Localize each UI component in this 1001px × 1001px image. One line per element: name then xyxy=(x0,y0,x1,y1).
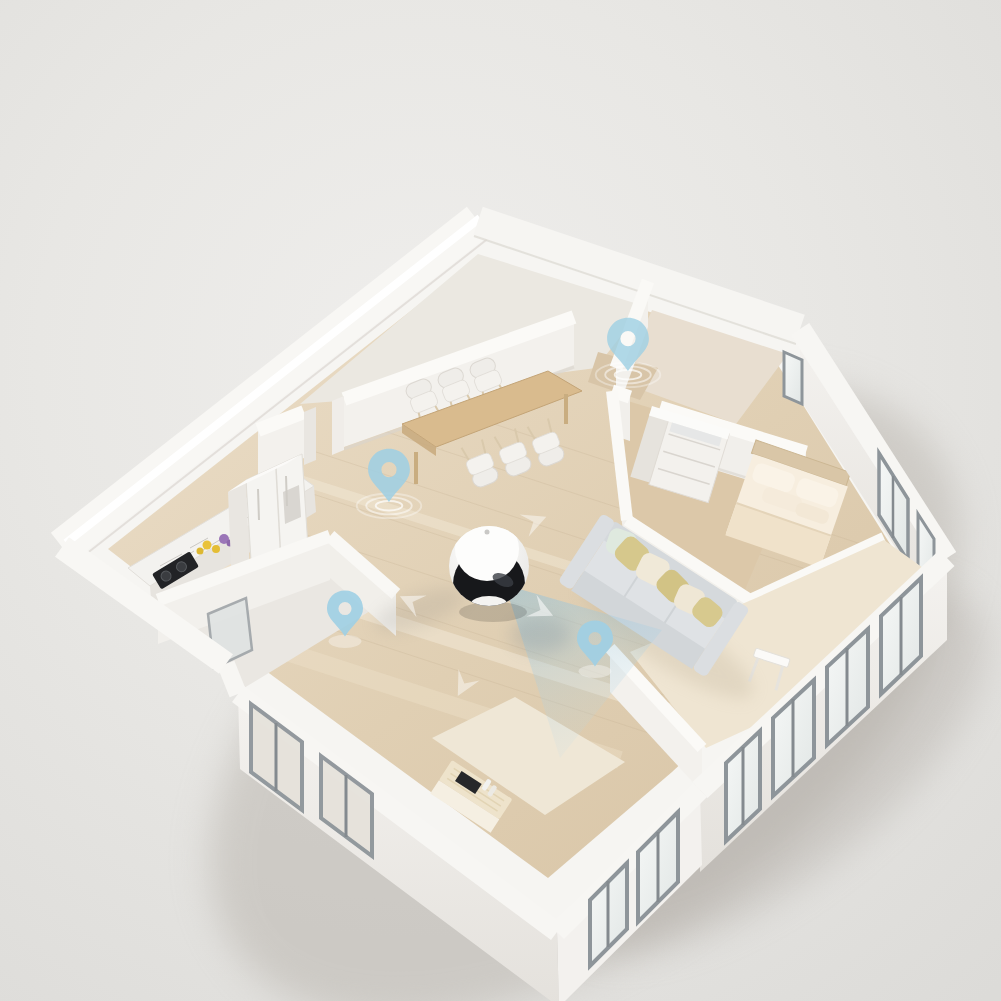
door-frame xyxy=(332,396,344,455)
location-pin-icon xyxy=(327,590,363,647)
robot-camera-icon xyxy=(485,530,490,535)
pin-glow xyxy=(329,635,362,648)
cone-shadow xyxy=(510,617,570,653)
window xyxy=(784,352,802,404)
location-pin-icon xyxy=(577,620,613,677)
apartment-render xyxy=(0,0,1001,1001)
door-frame xyxy=(304,407,316,465)
pin-glow xyxy=(579,665,612,678)
scene-canvas xyxy=(0,0,1001,1001)
